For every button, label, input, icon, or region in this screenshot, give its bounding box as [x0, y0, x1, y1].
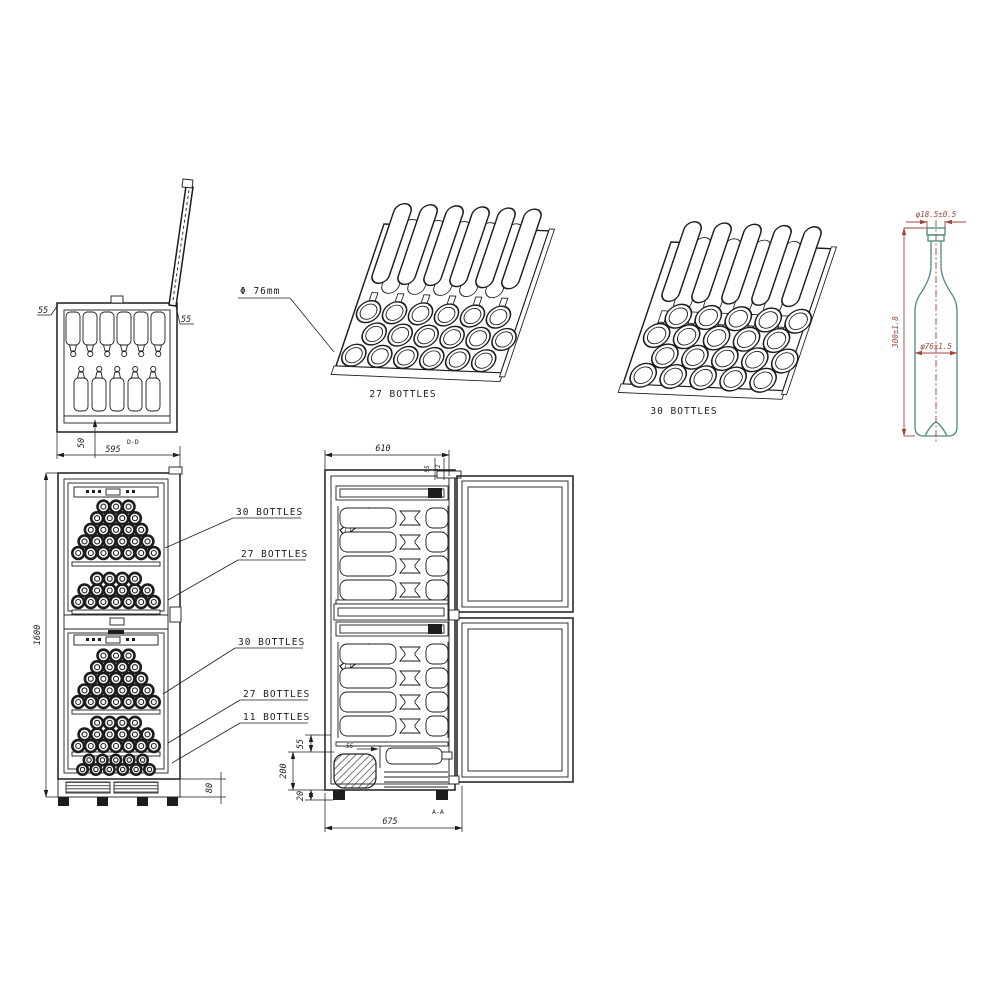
- bottle-end: [437, 326, 467, 349]
- open-door-flap-end: [182, 179, 193, 188]
- bottle-end: [72, 596, 84, 608]
- upper-button-3: [98, 490, 101, 493]
- bottle-end: [98, 673, 110, 685]
- lower-display: [106, 637, 120, 643]
- bottle-end: [129, 585, 141, 597]
- bottle-section-body: [340, 716, 396, 736]
- rack-27-label: 27 BOTTLES: [369, 389, 436, 400]
- bottle-end: [129, 536, 141, 548]
- bottle-end: [443, 348, 473, 371]
- bottle-end: [85, 547, 97, 559]
- bottle-end: [359, 323, 389, 346]
- lower-rack-27-bottles: [72, 717, 159, 752]
- bottle-end: [123, 596, 135, 608]
- dim-55-left: 55: [38, 306, 48, 316]
- bottle-end: [116, 573, 128, 585]
- lower-rack-30-bottles: [72, 650, 159, 708]
- bottle-plan-body: [74, 378, 88, 411]
- bottle-section-neck: [400, 583, 420, 597]
- bottle-end: [110, 596, 122, 608]
- dim-200: 200: [279, 763, 289, 778]
- bottle-plan-body: [110, 378, 124, 411]
- shelf-3: [72, 710, 160, 714]
- fan-block-2: [428, 624, 442, 634]
- bottle-end: [98, 524, 110, 536]
- bottle-plan-cap: [156, 351, 161, 356]
- rack-30-section: 30 BOTTLES: [618, 221, 843, 417]
- bottle-end: [85, 696, 97, 708]
- foot-2: [97, 797, 108, 806]
- open-door-bottom-frame: [462, 623, 568, 777]
- top-view-bottles: [66, 312, 165, 411]
- bottle-plan-neck: [78, 372, 85, 378]
- bottle-plan-body: [100, 312, 114, 345]
- bottle-end: [98, 547, 110, 559]
- base-vent-left: [66, 782, 110, 793]
- bottle-plan-cap: [139, 351, 144, 356]
- bottle-section-body: [340, 532, 396, 552]
- bottle-end: [79, 585, 91, 597]
- callout-lower-11: 11 BOTTLES: [172, 712, 310, 763]
- bottle-section-body: [426, 580, 448, 600]
- bottle-end: [405, 302, 435, 325]
- dim-595: 595: [105, 445, 120, 455]
- bottle-end: [84, 755, 94, 765]
- bottle-end: [91, 685, 103, 697]
- bottle-end: [123, 696, 135, 708]
- bottle-end: [137, 755, 147, 765]
- bottle-section-neck: [400, 559, 420, 573]
- bottle-end: [135, 740, 147, 752]
- callout-lower-30: 30 BOTTLES: [163, 637, 305, 694]
- bottle-end: [79, 536, 91, 548]
- bottle-end: [431, 304, 461, 327]
- bottle-end: [98, 596, 110, 608]
- bottle-end: [98, 501, 110, 513]
- bottle-end: [98, 650, 110, 662]
- side-foot-right: [436, 790, 448, 800]
- bottle-end: [457, 305, 487, 328]
- upper-button-2: [92, 490, 95, 493]
- bottle-end: [91, 573, 103, 585]
- door-handle: [170, 607, 181, 622]
- bottle-end: [116, 536, 128, 548]
- lower-button-2: [92, 638, 95, 641]
- side-bottom-bottle: [386, 748, 442, 764]
- bottle-end: [98, 696, 110, 708]
- bottle-end: [123, 501, 135, 513]
- bottle-plan-body: [151, 312, 165, 345]
- bottle-end: [116, 685, 128, 697]
- bottle-end: [129, 573, 141, 585]
- bottle-end: [135, 547, 147, 559]
- bottle-section-body: [426, 716, 448, 736]
- top-view-section: 55 55 50 595 D-D: [37, 179, 194, 472]
- bottle-section-body: [426, 556, 448, 576]
- view-label-aa: A-A: [432, 808, 444, 816]
- foot-3: [137, 797, 148, 806]
- foot-1: [58, 797, 69, 806]
- open-door-top-frame: [462, 481, 568, 607]
- bottle-plan-neck: [132, 372, 139, 378]
- bottle-section-neck: [400, 695, 420, 709]
- side-bottle-rows-1: [338, 506, 448, 602]
- bottle-end: [97, 755, 107, 765]
- bottle-end: [135, 673, 147, 685]
- phi-76-leader: [290, 298, 334, 352]
- open-door-top: [457, 476, 573, 612]
- bottle-section-body: [426, 532, 448, 552]
- bottle-end: [385, 324, 415, 347]
- bottle-end: [91, 661, 103, 673]
- bottle-plan-cap: [105, 351, 110, 356]
- bottle-end: [148, 740, 160, 752]
- dim-1600: 1600: [33, 625, 43, 645]
- rack-27-drawing: [331, 203, 561, 382]
- side-foot-left: [333, 790, 345, 800]
- side-bottom-bottle-neck: [442, 752, 452, 759]
- upper-button-4: [126, 490, 129, 493]
- bottle-end: [123, 650, 135, 662]
- bottle-end: [129, 685, 141, 697]
- bottle-plan-cap: [115, 366, 120, 371]
- bottle-end: [116, 512, 128, 524]
- bottle-plan-cap: [71, 351, 76, 356]
- bottle-section-body: [340, 508, 396, 528]
- bottle-end: [110, 501, 122, 513]
- bottle-section-neck: [400, 511, 420, 525]
- callout-label: 30 BOTTLES: [238, 637, 305, 648]
- bottle-end: [104, 717, 116, 729]
- bottle-end: [353, 300, 383, 323]
- bottle-end: [129, 661, 141, 673]
- front-hinge-top: [169, 467, 182, 474]
- bottle-end: [104, 585, 116, 597]
- bottle-end: [104, 729, 116, 741]
- bottle-end: [110, 740, 122, 752]
- bottle-end: [116, 661, 128, 673]
- rack-30-drawing: [618, 221, 843, 399]
- callout-leader: [163, 648, 235, 694]
- phi-76-note: Φ 76mm: [240, 286, 280, 297]
- bottle-end: [142, 585, 154, 597]
- bottle-end: [116, 585, 128, 597]
- bottle-drawing: φ18.5±0.5 300±1.8 φ76±1.5: [891, 210, 966, 442]
- bottle-end: [91, 764, 101, 774]
- bottle-end: [104, 512, 116, 524]
- bottle-plan-neck: [121, 345, 128, 351]
- bottle-end: [72, 740, 84, 752]
- bottle-end: [110, 696, 122, 708]
- bottle-end: [98, 740, 110, 752]
- bottle-plan-body: [83, 312, 97, 345]
- bottle-end: [111, 755, 121, 765]
- side-divider: [334, 604, 448, 620]
- bottle-end: [91, 729, 103, 741]
- lower-button-4: [126, 638, 129, 641]
- bottle-section-body: [426, 644, 448, 664]
- bottle-end: [91, 536, 103, 548]
- upper-display: [106, 489, 120, 495]
- dim-20: 20: [296, 791, 306, 801]
- bottle-plan-cap: [79, 366, 84, 371]
- bottle-section-body: [426, 508, 448, 528]
- bottle-end: [85, 596, 97, 608]
- side-hinge-bottom: [449, 776, 459, 784]
- divider-grille: [108, 630, 124, 634]
- bottle-end: [85, 740, 97, 752]
- bottle-end: [148, 547, 160, 559]
- bottle-plan-neck: [114, 372, 121, 378]
- bottle-end: [123, 547, 135, 559]
- bottle-end: [110, 524, 122, 536]
- bottle-end: [104, 661, 116, 673]
- bottle-end: [72, 696, 84, 708]
- shelf-2: [72, 610, 160, 614]
- bottle-end: [463, 327, 493, 350]
- bottle-end: [148, 596, 160, 608]
- bottle-section-neck: [400, 671, 420, 685]
- upper-button-1: [86, 490, 89, 493]
- bottle-plan-neck: [155, 345, 162, 351]
- bottle-end: [469, 349, 499, 372]
- bottle-end: [129, 512, 141, 524]
- dim-55-right: 55: [181, 315, 191, 325]
- bottle-end: [110, 547, 122, 559]
- view-label-dd: D-D: [127, 438, 139, 446]
- callout-label: 30 BOTTLES: [236, 507, 303, 518]
- shelf-1: [72, 562, 160, 566]
- dim-50: 50: [77, 438, 87, 448]
- bottle-end: [365, 345, 395, 368]
- bottle-section-neck: [400, 719, 420, 733]
- bottle-end: [142, 536, 154, 548]
- foot-4: [167, 797, 178, 806]
- open-door-top-glass: [468, 487, 562, 601]
- bottle-end: [91, 512, 103, 524]
- bottle-plan-cap: [97, 366, 102, 371]
- lower-rack-11-bottles: [77, 755, 154, 775]
- callout-label: 27 BOTTLES: [241, 549, 308, 560]
- bottle-end: [135, 696, 147, 708]
- rack-27-section: 27 BOTTLES Φ 76mm: [238, 203, 561, 400]
- bottle-section-body: [340, 556, 396, 576]
- dim-12-top: 12: [435, 464, 442, 472]
- side-bottle-rows-2: [338, 642, 448, 738]
- fan-block-1: [428, 488, 442, 498]
- bottle-plan-cap: [122, 351, 127, 356]
- callout-upper-30: 30 BOTTLES: [165, 507, 303, 548]
- bottle-end: [91, 585, 103, 597]
- bottle-end: [411, 325, 441, 348]
- upper-button-5: [132, 490, 135, 493]
- bottle-end: [79, 729, 91, 741]
- bottle-end: [131, 764, 141, 774]
- bottle-end: [144, 764, 154, 774]
- bottle-end: [104, 536, 116, 548]
- bottle-end: [483, 306, 513, 329]
- bottle-end: [339, 344, 369, 367]
- bottle-section-neck: [400, 535, 420, 549]
- front-view-section: 1600 80 30 BOTTLES 27 BOTTLES 30 BOTTLES…: [33, 467, 310, 806]
- dim-body-text: φ76±1.5: [920, 342, 952, 351]
- bottle-end: [123, 524, 135, 536]
- bottle-plan-cap: [133, 366, 138, 371]
- bottle-end: [116, 717, 128, 729]
- bottle-end: [72, 547, 84, 559]
- bottle-plan-body: [117, 312, 131, 345]
- upper-rack-30-bottles: [72, 501, 159, 559]
- callout-label: 11 BOTTLES: [243, 712, 310, 723]
- side-shelf-1: [336, 600, 448, 604]
- bottle-end: [77, 764, 87, 774]
- bottle-plan-cap: [151, 366, 156, 371]
- base-vent-right: [114, 782, 158, 793]
- bottle-plan-neck: [138, 345, 145, 351]
- lower-button-3: [98, 638, 101, 641]
- bottle-end: [104, 685, 116, 697]
- dim-height-text: 300±1.8: [891, 316, 900, 349]
- bottle-end: [129, 729, 141, 741]
- bottle-end: [135, 524, 147, 536]
- bottle-plan-neck: [87, 345, 94, 351]
- callout-leader: [168, 560, 238, 600]
- bottle-section-body: [426, 692, 448, 712]
- dim-neck-text: φ18.5±0.5: [916, 210, 957, 219]
- bottle-plan-body: [134, 312, 148, 345]
- divider-vent: [110, 618, 124, 625]
- callout-leader: [168, 700, 240, 743]
- bottle-plan-neck: [104, 345, 111, 351]
- bottle-section-body: [426, 668, 448, 688]
- callout-label: 27 BOTTLES: [243, 689, 310, 700]
- bottle-end: [129, 717, 141, 729]
- bottle-plan-cap: [88, 351, 93, 356]
- bottle-section-body: [340, 580, 396, 600]
- lower-button-5: [132, 638, 135, 641]
- bottle-end: [91, 717, 103, 729]
- dim-55-top: 55: [424, 465, 431, 473]
- bottle-end: [135, 596, 147, 608]
- bottle-end: [110, 673, 122, 685]
- callout-leader: [165, 518, 233, 548]
- bottle-plan-body: [128, 378, 142, 411]
- bottle-plan-body: [66, 312, 80, 345]
- bottle-end: [142, 685, 154, 697]
- compressor: [334, 754, 376, 788]
- side-view-section: 610 55 12 55 55 200 20 675 A-A: [279, 444, 573, 832]
- bottle-plan-neck: [150, 372, 157, 378]
- callout-leader: [172, 723, 240, 763]
- dim-610: 610: [375, 444, 390, 454]
- bottle-end: [85, 524, 97, 536]
- bottle-end: [142, 729, 154, 741]
- bottle-end: [118, 764, 128, 774]
- callout-upper-27: 27 BOTTLES: [168, 549, 308, 600]
- bottle-section-body: [340, 692, 396, 712]
- lower-button-1: [86, 638, 89, 641]
- dim-80: 80: [205, 783, 215, 793]
- bottle-end: [417, 347, 447, 370]
- side-hinge-middle: [449, 610, 459, 620]
- bottle-end: [123, 740, 135, 752]
- open-door-bottom-glass: [468, 629, 562, 771]
- bottle-section-neck: [400, 647, 420, 661]
- bottle-end: [123, 673, 135, 685]
- rack-30-label: 30 BOTTLES: [650, 406, 717, 417]
- dim-step-55: 55: [346, 743, 354, 750]
- upper-rack-27-bottles: [72, 573, 159, 608]
- top-view-hinge-cap: [111, 296, 123, 303]
- dim-675: 675: [382, 817, 397, 827]
- bottle-plan-neck: [96, 372, 103, 378]
- bottle-end: [391, 346, 421, 369]
- bottle-plan-body: [92, 378, 106, 411]
- bottle-plan-body: [146, 378, 160, 411]
- drawing-canvas: 55 55 50 595 D-D 27 BOTTLES Φ 76mm: [0, 0, 1000, 1000]
- top-view-door-frame: [64, 416, 170, 423]
- bottle-end: [379, 301, 409, 324]
- bottle-end: [79, 685, 91, 697]
- bottle-end: [85, 673, 97, 685]
- bottle-end: [148, 696, 160, 708]
- bottle-end: [124, 755, 134, 765]
- bottle-end: [110, 650, 122, 662]
- bottle-plan-neck: [70, 345, 77, 351]
- bottle-end: [627, 363, 660, 388]
- dim-55-side: 55: [296, 739, 306, 749]
- bottle-section-body: [340, 644, 396, 664]
- bottle-end: [116, 729, 128, 741]
- open-door-bottom: [457, 618, 573, 782]
- bottle-end: [104, 764, 114, 774]
- technical-drawing-sheet: 55 55 50 595 D-D 27 BOTTLES Φ 76mm: [0, 0, 1000, 1000]
- bottle-end: [104, 573, 116, 585]
- bottle-section-body: [340, 668, 396, 688]
